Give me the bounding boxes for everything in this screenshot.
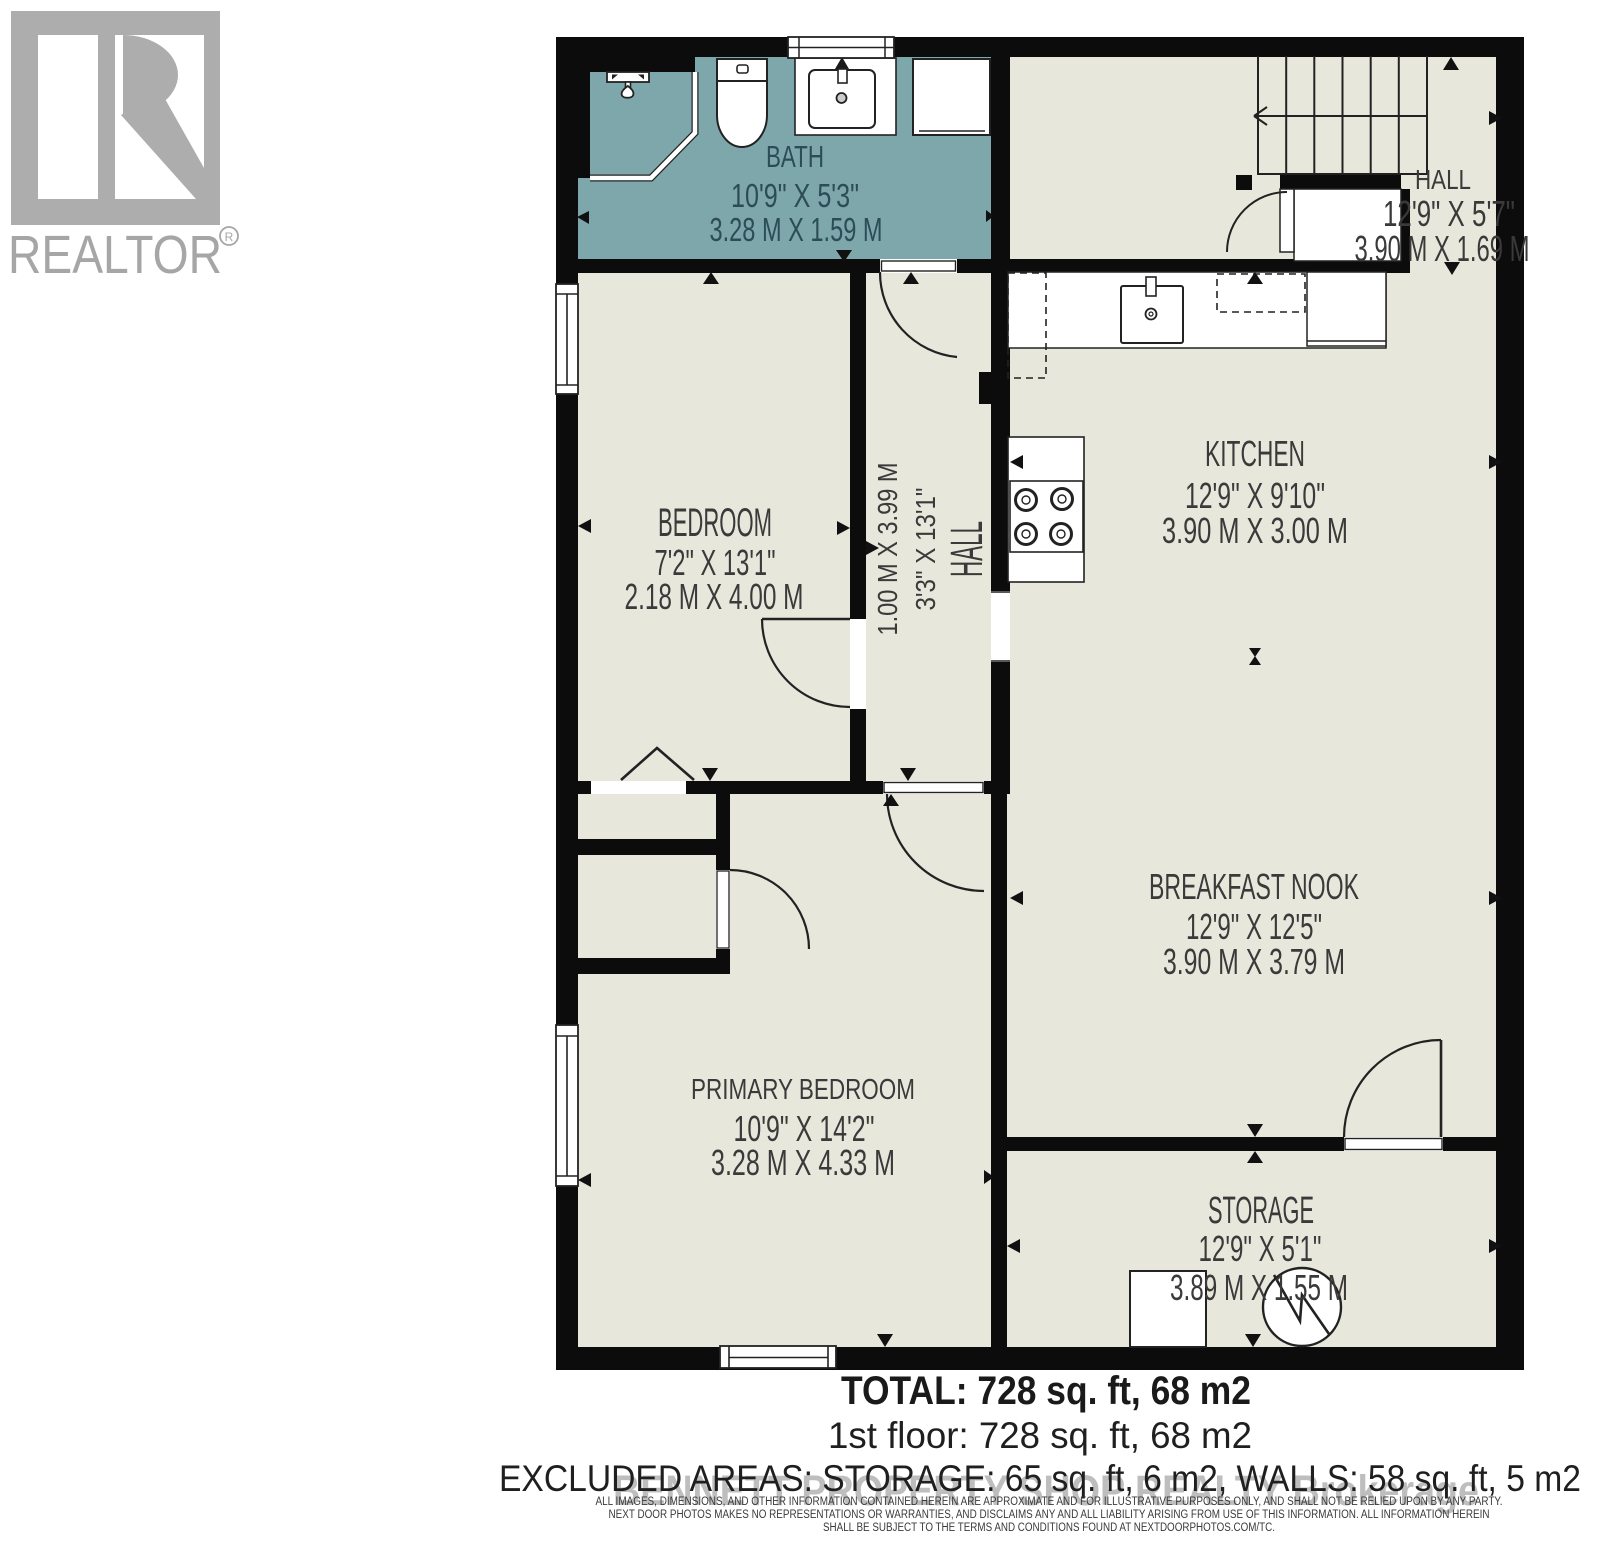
svg-text:HALL: HALL xyxy=(1415,164,1471,195)
svg-text:STORAGE: STORAGE xyxy=(1208,1190,1314,1232)
svg-text:3.28 M X 1.59 M: 3.28 M X 1.59 M xyxy=(710,211,883,248)
svg-text:3.89 M X 1.55 M: 3.89 M X 1.55 M xyxy=(1170,1267,1348,1308)
svg-text:BREAKFAST NOOK: BREAKFAST NOOK xyxy=(1149,866,1359,907)
svg-text:3.90 M X 3.79 M: 3.90 M X 3.79 M xyxy=(1163,941,1345,982)
svg-text:10'9" X 5'3": 10'9" X 5'3" xyxy=(731,177,859,214)
svg-text:3.90 M X 3.00 M: 3.90 M X 3.00 M xyxy=(1162,510,1348,551)
svg-text:BEDROOM: BEDROOM xyxy=(658,501,772,545)
svg-text:ALL IMAGES, DIMENSIONS, AND OT: ALL IMAGES, DIMENSIONS, AND OTHER INFORM… xyxy=(596,1496,1503,1508)
svg-text:BATH: BATH xyxy=(766,139,824,174)
svg-text:REALTOR: REALTOR xyxy=(8,225,222,285)
svg-text:1st floor: 728 sq. ft, 68 m2: 1st floor: 728 sq. ft, 68 m2 xyxy=(828,1415,1252,1456)
svg-text:KITCHEN: KITCHEN xyxy=(1205,433,1305,474)
svg-text:3.28 M X 4.33 M: 3.28 M X 4.33 M xyxy=(711,1142,895,1183)
svg-text:12'9" X 5'1": 12'9" X 5'1" xyxy=(1199,1228,1322,1269)
svg-text:2.18 M X 4.00 M: 2.18 M X 4.00 M xyxy=(625,576,804,617)
svg-text:1.00 M X 3.99 M: 1.00 M X 3.99 M xyxy=(872,463,903,636)
svg-text:HALL: HALL xyxy=(941,521,992,577)
svg-text:3'3" X 13'1": 3'3" X 13'1" xyxy=(910,488,941,611)
svg-text:EXCLUDED AREAS: STORAGE: 65 sq: EXCLUDED AREAS: STORAGE: 65 sq. ft, 6 m2… xyxy=(499,1458,1581,1499)
svg-text:NEXT DOOR PHOTOS MAKES NO REPR: NEXT DOOR PHOTOS MAKES NO REPRESENTATION… xyxy=(609,1509,1490,1521)
svg-text:3.90 M X 1.69 M: 3.90 M X 1.69 M xyxy=(1355,228,1530,269)
svg-text:R: R xyxy=(225,230,234,244)
svg-text:TOTAL: 728 sq. ft, 68 m2: TOTAL: 728 sq. ft, 68 m2 xyxy=(841,1369,1251,1413)
svg-text:SHALL BE SUBJECT TO THE TERMS: SHALL BE SUBJECT TO THE TERMS AND CONDIT… xyxy=(823,1522,1275,1534)
svg-text:PRIMARY BEDROOM: PRIMARY BEDROOM xyxy=(691,1074,915,1106)
